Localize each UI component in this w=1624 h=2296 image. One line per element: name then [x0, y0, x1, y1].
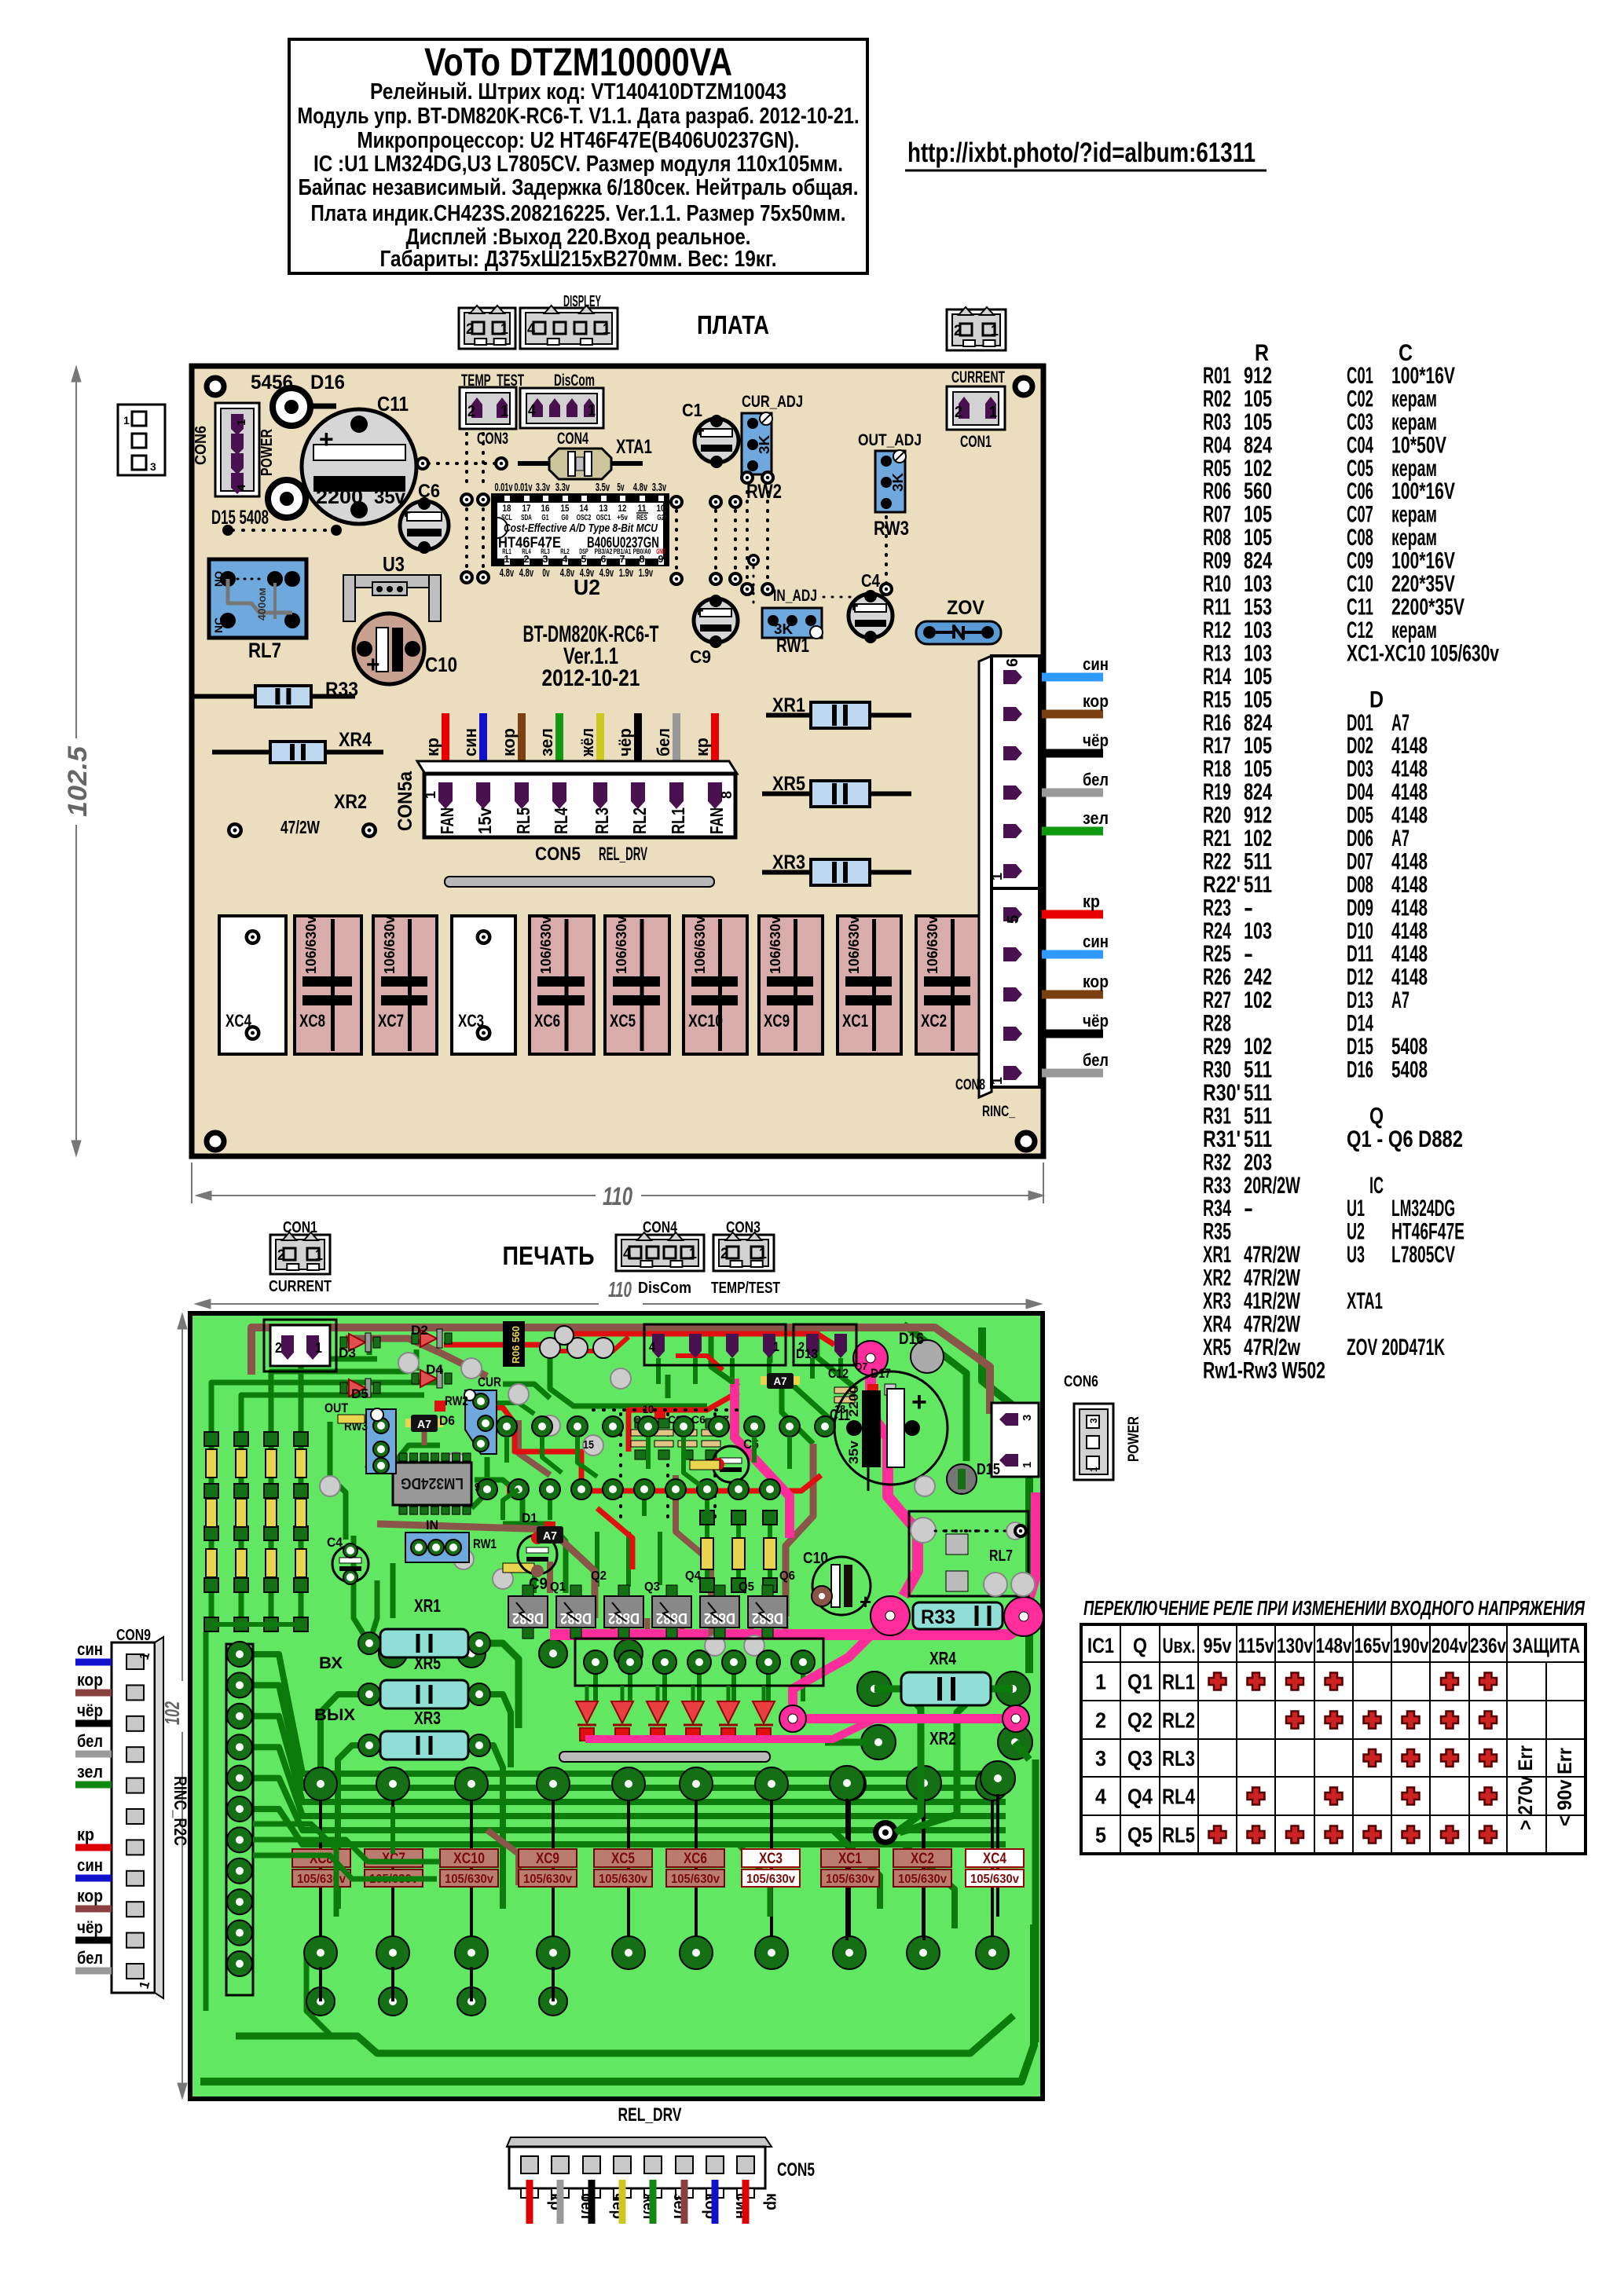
svg-text:511: 511 — [1244, 1057, 1272, 1083]
svg-text:R25: R25 — [1203, 941, 1231, 967]
svg-text:R14: R14 — [1203, 664, 1231, 690]
svg-text:18: 18 — [503, 503, 511, 514]
svg-text:1: 1 — [123, 414, 130, 427]
svg-text:XR4: XR4 — [1203, 1312, 1231, 1338]
svg-text:Габариты: Д375хШ215хВ270мм. Ве: Габариты: Д375хШ215хВ270мм. Вес: 19кг. — [380, 247, 777, 272]
svg-text:3K: 3K — [757, 435, 772, 454]
svg-text:1: 1 — [991, 323, 999, 339]
svg-text:4: 4 — [528, 402, 537, 419]
svg-text:R04: R04 — [1203, 432, 1231, 458]
svg-text:1: 1 — [315, 1340, 322, 1356]
svg-text:R30: R30 — [1203, 1057, 1231, 1083]
svg-text:D09: D09 — [1347, 895, 1373, 921]
svg-text:D16: D16 — [310, 372, 345, 394]
svg-text:105/630v: 105/630v — [445, 1873, 493, 1886]
svg-text:103: 103 — [1244, 640, 1272, 666]
svg-text:RL1: RL1 — [668, 807, 688, 834]
svg-text:POWER: POWER — [1126, 1416, 1142, 1462]
svg-text:R11: R11 — [1203, 595, 1231, 621]
svg-text:кор: кор — [1083, 972, 1109, 991]
svg-text:бел: бел — [1083, 1050, 1109, 1070]
svg-text:+: + — [366, 652, 380, 678]
svg-text:D: D — [1369, 687, 1384, 712]
svg-text:15v: 15v — [475, 807, 495, 834]
svg-text:236v: 236v — [1470, 1634, 1506, 1657]
svg-text:Q4: Q4 — [1127, 1785, 1153, 1809]
svg-text:A7: A7 — [774, 1375, 787, 1387]
svg-text:15: 15 — [561, 503, 570, 514]
svg-text:4.8v: 4.8v — [633, 481, 648, 494]
svg-text:C4: C4 — [327, 1535, 343, 1550]
svg-text:DisCom: DisCom — [554, 372, 595, 390]
svg-text:C11: C11 — [1347, 595, 1373, 621]
svg-text:зел: зел — [1083, 808, 1109, 828]
svg-text:Плата индик.CH423S.208216225.: Плата индик.CH423S.208216225. Ver.1.1. Р… — [311, 201, 846, 226]
svg-text:16: 16 — [541, 503, 550, 514]
svg-text:D08: D08 — [1347, 872, 1373, 898]
svg-text:U3: U3 — [1347, 1242, 1365, 1268]
svg-text:XR3: XR3 — [1203, 1288, 1231, 1314]
svg-text:син: син — [1083, 932, 1109, 951]
svg-text:IC: IC — [1369, 1173, 1384, 1199]
svg-text:11: 11 — [638, 503, 647, 514]
svg-text:4: 4 — [527, 321, 535, 338]
svg-text:R35: R35 — [1203, 1219, 1231, 1245]
svg-text:чёр: чёр — [77, 1917, 103, 1937]
svg-text:CUR: CUR — [478, 1375, 501, 1390]
svg-text:47/2W: 47/2W — [280, 817, 320, 837]
svg-text:D13: D13 — [1347, 987, 1373, 1013]
svg-text:R12: R12 — [1203, 617, 1231, 643]
svg-text:4.8v: 4.8v — [519, 566, 534, 580]
svg-text:R21: R21 — [1203, 826, 1231, 851]
svg-text:CON1: CON1 — [960, 433, 992, 451]
svg-text:13: 13 — [599, 503, 608, 514]
svg-text:IN_ADJ: IN_ADJ — [773, 587, 817, 605]
svg-text:XC4: XC4 — [225, 1011, 252, 1031]
svg-text:бел: бел — [77, 1731, 103, 1751]
svg-text:R08: R08 — [1203, 525, 1231, 551]
svg-text:D07: D07 — [1347, 848, 1373, 874]
svg-text:106/630v: 106/630v — [692, 916, 708, 974]
svg-text:R03: R03 — [1203, 409, 1231, 435]
svg-text:XC1: XC1 — [838, 1851, 862, 1867]
svg-text:U3: U3 — [383, 552, 405, 576]
svg-text:кр: кр — [77, 1825, 94, 1844]
svg-text:4148: 4148 — [1391, 848, 1428, 874]
svg-text:ПЕРЕКЛЮЧЕНИЕ РЕЛЕ ПРИ ИЗМЕНЕНИ: ПЕРЕКЛЮЧЕНИЕ РЕЛЕ ПРИ ИЗМЕНЕНИИ ВХОДНОГО… — [1083, 1596, 1586, 1620]
svg-text:2: 2 — [466, 321, 474, 338]
svg-text:ВХ: ВХ — [319, 1654, 343, 1672]
svg-text:XC3: XC3 — [759, 1851, 783, 1867]
svg-text:REL_DRV: REL_DRV — [599, 844, 647, 865]
svg-text:R33: R33 — [921, 1606, 955, 1628]
svg-text:47R/2w: 47R/2w — [1244, 1335, 1300, 1360]
svg-text:3: 3 — [1088, 1418, 1099, 1423]
svg-text:RL5: RL5 — [1162, 1823, 1195, 1847]
svg-text:XR2: XR2 — [1203, 1265, 1231, 1291]
svg-text:CON6: CON6 — [192, 426, 210, 465]
svg-text:100*16V: 100*16V — [1391, 363, 1455, 389]
svg-text:1: 1 — [504, 553, 510, 565]
svg-text:кр: кр — [423, 738, 442, 756]
svg-text:115v: 115v — [1238, 1634, 1274, 1657]
svg-text:20R/2W: 20R/2W — [1244, 1173, 1300, 1199]
svg-text:D04: D04 — [1347, 779, 1373, 805]
svg-text:XR5: XR5 — [772, 773, 805, 795]
svg-text:http://ixbt.photo/?id=album:61: http://ixbt.photo/?id=album:61311 — [907, 137, 1256, 168]
svg-text:4: 4 — [1095, 1785, 1106, 1809]
svg-text:6: 6 — [1004, 658, 1021, 667]
svg-text:D01: D01 — [1347, 710, 1373, 736]
svg-text:Q1 - Q6 D882: Q1 - Q6 D882 — [1347, 1126, 1463, 1152]
svg-text:153: 153 — [1244, 595, 1272, 621]
svg-text:чёр: чёр — [1083, 731, 1109, 750]
svg-text:керам: керам — [1391, 525, 1437, 551]
svg-text:XC8: XC8 — [299, 1011, 325, 1031]
svg-text:5408: 5408 — [1391, 1057, 1428, 1083]
svg-text:HT46F47E: HT46F47E — [1391, 1219, 1465, 1245]
svg-text:чёр: чёр — [77, 1701, 103, 1720]
svg-text:148v: 148v — [1316, 1634, 1352, 1657]
svg-text:4.8v: 4.8v — [560, 566, 575, 580]
svg-text:син: син — [460, 728, 480, 756]
svg-text:XC5: XC5 — [610, 1011, 636, 1031]
svg-text:зел: зел — [77, 1762, 103, 1782]
svg-text:2: 2 — [277, 1247, 285, 1264]
svg-text:D16: D16 — [1347, 1057, 1373, 1083]
svg-text:Модуль упр. BT-DM820K-RC6-T. V: Модуль упр. BT-DM820K-RC6-T. V1.1. Дата … — [298, 104, 860, 129]
svg-text:RL2: RL2 — [629, 807, 650, 834]
svg-text:10*50V: 10*50V — [1391, 432, 1446, 458]
svg-text:102: 102 — [1244, 826, 1272, 851]
svg-text:XC5: XC5 — [611, 1851, 635, 1867]
svg-text:1: 1 — [1095, 1670, 1106, 1694]
svg-text:4148: 4148 — [1391, 918, 1428, 944]
svg-text:Байпас независимый. Задержка 6: Байпас независимый. Задержка 6/180сек. Н… — [299, 175, 859, 200]
svg-text:XR1: XR1 — [772, 694, 805, 716]
svg-text:D6: D6 — [439, 1413, 455, 1428]
svg-text:3: 3 — [150, 460, 156, 473]
svg-text:+: + — [319, 425, 334, 453]
svg-text:2: 2 — [275, 1340, 282, 1356]
svg-text:RL4: RL4 — [1162, 1785, 1195, 1809]
svg-text:4: 4 — [623, 1246, 631, 1262]
svg-text:RL3: RL3 — [592, 807, 612, 834]
svg-text:жёл: жёл — [577, 728, 597, 757]
svg-text:D882: D882 — [752, 1609, 783, 1626]
svg-text:4148: 4148 — [1391, 733, 1428, 759]
svg-text:C01: C01 — [1347, 363, 1373, 389]
svg-text:син: син — [77, 1639, 103, 1659]
svg-text:103: 103 — [1244, 617, 1272, 643]
svg-text:Q5: Q5 — [739, 1580, 754, 1594]
svg-text:IN: IN — [426, 1518, 438, 1532]
svg-text:чёр: чёр — [1083, 1011, 1109, 1031]
svg-text:кр: кр — [692, 738, 712, 756]
svg-text:кр: кр — [763, 2193, 781, 2210]
svg-text:105: 105 — [1244, 756, 1272, 782]
svg-text:TEMP/TEST: TEMP/TEST — [711, 1280, 780, 1297]
svg-text:100*16V: 100*16V — [1391, 478, 1455, 504]
svg-text:R24: R24 — [1203, 918, 1231, 944]
svg-text:R19: R19 — [1203, 779, 1231, 805]
svg-text:1: 1 — [1021, 1462, 1034, 1468]
svg-text:POWER: POWER — [258, 429, 276, 476]
svg-text:102.5: 102.5 — [63, 745, 93, 817]
svg-text:REL_DRV: REL_DRV — [618, 2104, 682, 2126]
svg-text:LM324DG: LM324DG — [401, 1474, 464, 1492]
svg-text:D2: D2 — [411, 1323, 428, 1338]
svg-text:511: 511 — [1244, 872, 1272, 898]
svg-text:824: 824 — [1244, 710, 1272, 736]
svg-text:102: 102 — [1244, 1034, 1272, 1060]
svg-text:R15: R15 — [1203, 687, 1231, 712]
svg-text:Q3: Q3 — [1127, 1746, 1153, 1771]
svg-text:511: 511 — [1244, 1103, 1272, 1129]
svg-text:106/630v: 106/630v — [538, 916, 554, 974]
svg-text:Q1: Q1 — [550, 1580, 566, 1594]
svg-text:C02: C02 — [1347, 386, 1373, 412]
svg-text:1.9v: 1.9v — [639, 566, 654, 580]
svg-text:CURRENT: CURRENT — [951, 368, 1005, 386]
svg-text:Q3: Q3 — [644, 1580, 660, 1594]
svg-text:кор: кор — [77, 1886, 103, 1906]
svg-text:R33: R33 — [325, 679, 358, 701]
svg-text:3.3v: 3.3v — [555, 481, 570, 494]
svg-text:3: 3 — [543, 553, 548, 565]
svg-text:Q4: Q4 — [685, 1569, 701, 1583]
svg-text:OUT_ADJ: OUT_ADJ — [858, 431, 922, 449]
svg-text:XC6: XC6 — [684, 1851, 707, 1867]
svg-text:105/630v: 105/630v — [671, 1873, 720, 1886]
svg-text:105: 105 — [1244, 733, 1272, 759]
svg-text:1: 1 — [603, 321, 610, 338]
svg-text:5: 5 — [581, 553, 587, 565]
svg-text:D11: D11 — [1347, 941, 1373, 967]
svg-text:RW3: RW3 — [874, 518, 909, 540]
svg-text:4148: 4148 — [1391, 965, 1428, 991]
svg-text:R06 560: R06 560 — [510, 1326, 522, 1364]
svg-text:400ом: 400ом — [255, 588, 268, 621]
svg-text:D1: D1 — [522, 1511, 537, 1525]
svg-text:105/630v: 105/630v — [970, 1873, 1019, 1886]
svg-text:5: 5 — [1095, 1823, 1106, 1847]
svg-text:R10: R10 — [1203, 571, 1231, 597]
svg-text:C03: C03 — [1347, 409, 1373, 435]
svg-text:Q5: Q5 — [1127, 1823, 1153, 1847]
svg-text:106/630v: 106/630v — [846, 916, 862, 974]
svg-text:D3: D3 — [339, 1346, 356, 1360]
svg-text:4148: 4148 — [1391, 779, 1428, 805]
svg-text:+: + — [860, 1590, 871, 1613]
svg-text:110: 110 — [603, 1182, 632, 1210]
svg-text:XC9: XC9 — [536, 1851, 559, 1867]
svg-text:Q: Q — [1369, 1103, 1384, 1129]
svg-text:824: 824 — [1244, 432, 1272, 458]
svg-text:165v: 165v — [1355, 1634, 1391, 1657]
svg-text:XR1: XR1 — [1203, 1242, 1231, 1268]
svg-text:CURRENT: CURRENT — [269, 1278, 332, 1295]
svg-text:XR3: XR3 — [772, 851, 805, 873]
svg-text:Q2: Q2 — [591, 1569, 607, 1583]
svg-text:130v: 130v — [1277, 1634, 1313, 1657]
svg-text:RL4: RL4 — [551, 807, 571, 834]
svg-text:4.8v: 4.8v — [500, 566, 515, 580]
svg-text:1: 1 — [235, 419, 248, 426]
svg-text:-: - — [1244, 895, 1253, 921]
svg-text:47R/2W: 47R/2W — [1244, 1242, 1300, 1268]
svg-text:CON8: CON8 — [955, 1077, 985, 1093]
svg-text:ПЕЧАТЬ: ПЕЧАТЬ — [503, 1241, 595, 1270]
svg-text:Uвх.: Uвх. — [1163, 1634, 1196, 1657]
svg-text:105: 105 — [1244, 525, 1272, 551]
svg-text:2200: 2200 — [316, 486, 363, 508]
svg-text:4: 4 — [649, 1339, 655, 1354]
svg-text:D15 5408: D15 5408 — [211, 507, 269, 529]
svg-text:D15: D15 — [1347, 1034, 1373, 1060]
svg-text:R31: R31 — [1203, 1103, 1231, 1129]
svg-text:560: 560 — [1244, 478, 1272, 504]
svg-text:17: 17 — [522, 503, 531, 514]
svg-text:511: 511 — [1244, 848, 1272, 874]
svg-text:3: 3 — [1021, 1415, 1034, 1421]
svg-text:12: 12 — [618, 503, 627, 514]
svg-text:R23: R23 — [1203, 895, 1231, 921]
svg-text:5v: 5v — [617, 481, 625, 494]
svg-text:CON4: CON4 — [557, 430, 588, 448]
svg-text:D14: D14 — [1347, 1011, 1373, 1037]
svg-text:XC10: XC10 — [688, 1011, 723, 1031]
svg-text:105: 105 — [1244, 687, 1272, 712]
svg-text:Cost-Effective A/D Type 8-Bit: Cost-Effective A/D Type 8-Bit MCU — [504, 522, 658, 535]
svg-text:RL1: RL1 — [1162, 1670, 1195, 1694]
svg-text:C09: C09 — [1347, 548, 1373, 574]
svg-text:3: 3 — [1095, 1746, 1106, 1771]
svg-text:C9: C9 — [690, 646, 711, 667]
svg-text:RL7: RL7 — [248, 639, 281, 662]
svg-text:FAN: FAN — [437, 807, 457, 834]
svg-text:Q2: Q2 — [1127, 1708, 1153, 1733]
svg-text:XR2: XR2 — [929, 1728, 956, 1749]
svg-text:105: 105 — [1244, 409, 1272, 435]
svg-text:511: 511 — [1244, 1126, 1272, 1152]
svg-text:1: 1 — [989, 1077, 1005, 1085]
svg-text:2: 2 — [467, 403, 475, 420]
svg-text:керам: керам — [1391, 386, 1437, 412]
svg-text:RW1: RW1 — [776, 635, 809, 657]
svg-text:U2: U2 — [574, 575, 600, 599]
svg-text:R06: R06 — [1203, 478, 1231, 504]
svg-text:R31': R31' — [1203, 1126, 1241, 1152]
svg-text:203: 203 — [1244, 1149, 1272, 1175]
svg-text:1: 1 — [1088, 1467, 1099, 1472]
svg-text:4148: 4148 — [1391, 756, 1428, 782]
svg-text:2: 2 — [954, 323, 962, 339]
svg-text:4148: 4148 — [1391, 803, 1428, 829]
svg-text:1: 1 — [989, 873, 1005, 881]
svg-text:1: 1 — [500, 403, 508, 420]
svg-text:103: 103 — [1244, 918, 1272, 944]
svg-text:C08: C08 — [1347, 525, 1373, 551]
svg-text:1: 1 — [315, 1247, 323, 1264]
svg-text:C1: C1 — [682, 400, 702, 420]
svg-text:R34: R34 — [1203, 1196, 1231, 1221]
svg-text:чёр: чёр — [615, 728, 635, 756]
svg-text:CON5: CON5 — [777, 2159, 815, 2181]
svg-text:Rw1-Rw3 W502: Rw1-Rw3 W502 — [1203, 1357, 1325, 1383]
svg-text:C12: C12 — [828, 1366, 849, 1381]
svg-text:10: 10 — [643, 1403, 654, 1416]
svg-text:105/630v: 105/630v — [599, 1873, 647, 1886]
svg-text:2: 2 — [720, 1246, 728, 1262]
svg-text:XC6: XC6 — [534, 1011, 560, 1031]
svg-text:0.01v: 0.01v — [495, 481, 513, 494]
svg-text:XC2: XC2 — [911, 1851, 934, 1867]
svg-text:102: 102 — [1244, 987, 1272, 1013]
svg-text:105: 105 — [1244, 502, 1272, 528]
svg-text:D5: D5 — [351, 1386, 368, 1401]
svg-text:XC1-XC10 105/630v: XC1-XC10 105/630v — [1347, 640, 1499, 666]
svg-text:> 270v Err: > 270v Err — [1515, 1745, 1537, 1830]
svg-text:4: 4 — [563, 553, 569, 565]
svg-text:106/630v: 106/630v — [303, 916, 319, 974]
svg-text:D10: D10 — [1347, 918, 1373, 944]
svg-text:OUT: OUT — [324, 1401, 349, 1415]
svg-text:D05: D05 — [1347, 803, 1373, 829]
svg-text:XTA1: XTA1 — [1347, 1288, 1383, 1314]
svg-text:ВЫХ: ВЫХ — [314, 1706, 355, 1724]
svg-text:5: 5 — [1005, 915, 1022, 924]
svg-text:8: 8 — [640, 553, 645, 565]
svg-text:D15: D15 — [977, 1461, 1000, 1478]
svg-text:XC7: XC7 — [378, 1011, 404, 1031]
svg-text:A7: A7 — [417, 1418, 431, 1431]
svg-text:Q1: Q1 — [1127, 1670, 1153, 1694]
svg-text:1: 1 — [759, 1246, 767, 1262]
svg-text:син: син — [77, 1855, 103, 1875]
svg-text:105: 105 — [1244, 664, 1272, 690]
svg-text:CON3: CON3 — [477, 430, 508, 448]
svg-text:824: 824 — [1244, 779, 1272, 805]
svg-text:10: 10 — [657, 503, 665, 514]
svg-text:XC10: XC10 — [453, 1851, 485, 1867]
svg-text:C4: C4 — [861, 570, 880, 591]
svg-text:Q6: Q6 — [779, 1569, 795, 1583]
svg-text:5408: 5408 — [1391, 1034, 1428, 1060]
svg-text:ЗАЩИТА: ЗАЩИТА — [1512, 1634, 1580, 1657]
svg-text:CUR_ADJ: CUR_ADJ — [742, 393, 803, 411]
svg-text:RL3: RL3 — [1162, 1746, 1195, 1771]
svg-text:< 90v Err: < 90v Err — [1554, 1748, 1576, 1826]
svg-text:105/630v: 105/630v — [746, 1873, 795, 1886]
svg-text:D882: D882 — [608, 1609, 640, 1626]
svg-text:106/630v: 106/630v — [382, 916, 398, 974]
svg-text:керам: керам — [1391, 409, 1437, 435]
svg-text:1: 1 — [423, 791, 438, 799]
svg-text:+: + — [911, 1387, 927, 1417]
svg-text:XC9: XC9 — [764, 1011, 790, 1031]
svg-text:2: 2 — [1095, 1708, 1106, 1733]
svg-text:2200: 2200 — [846, 1386, 861, 1417]
svg-text:Микропроцессор: U2 HT46F47E(B4: Микропроцессор: U2 HT46F47E(B406U0237GN)… — [357, 128, 800, 153]
svg-text:912: 912 — [1244, 363, 1272, 389]
svg-text:RL2: RL2 — [1162, 1708, 1195, 1733]
svg-text:IC :U1 LM324DG,U3 L7805CV. Раз: IC :U1 LM324DG,U3 L7805CV. Размер модуля… — [313, 152, 843, 177]
svg-text:XR1: XR1 — [414, 1595, 441, 1616]
svg-text:+: + — [694, 601, 704, 621]
svg-text:D882: D882 — [512, 1609, 544, 1626]
